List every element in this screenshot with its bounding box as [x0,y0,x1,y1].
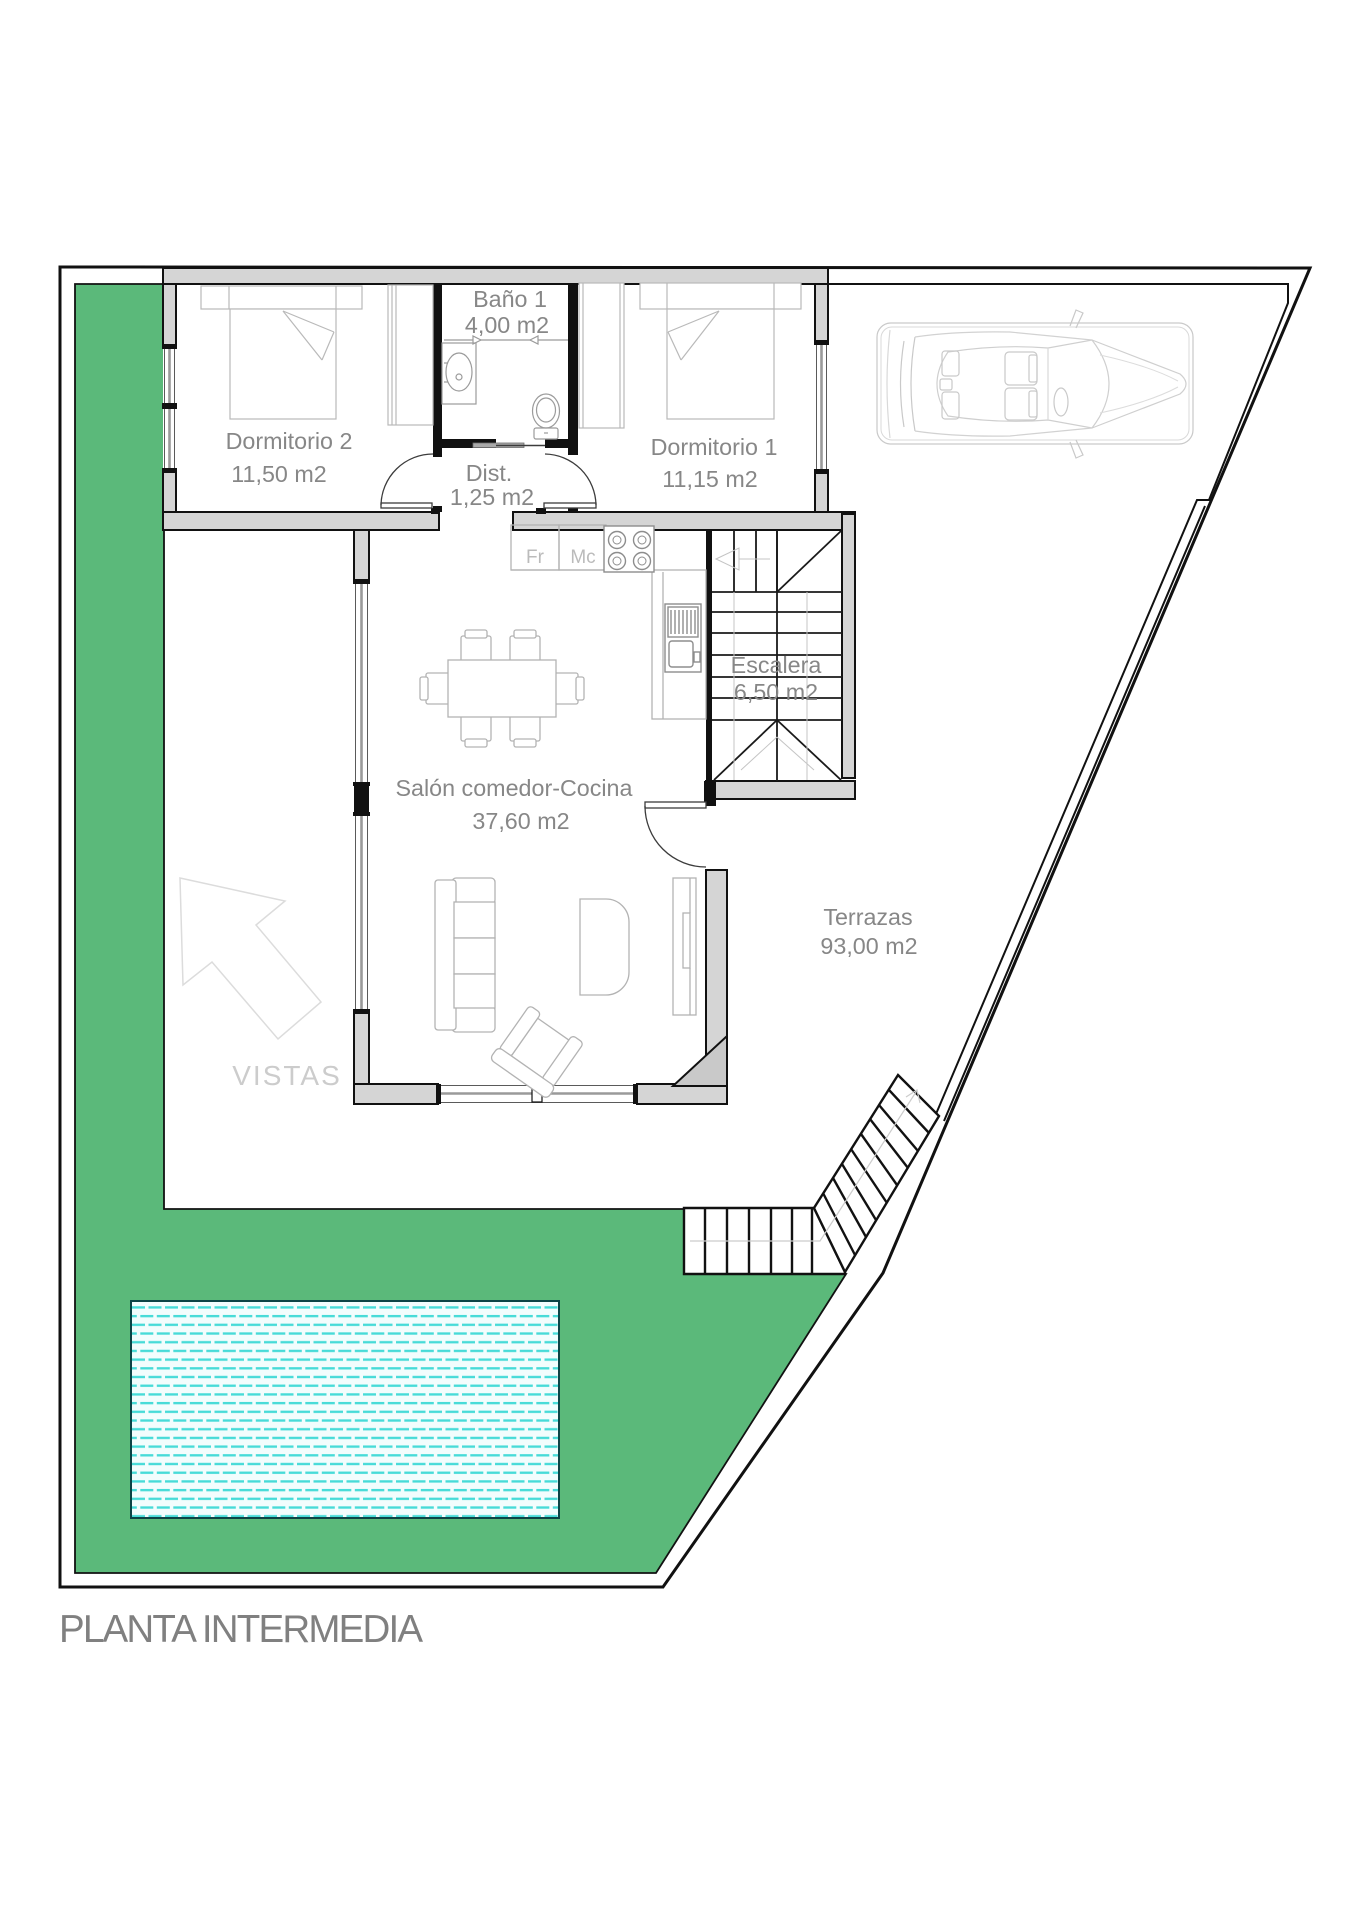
svg-text:PLANTA INTERMEDIA: PLANTA INTERMEDIA [59,1608,423,1651]
svg-text:Terrazas: Terrazas [823,904,912,930]
svg-text:Dormitorio 2: Dormitorio 2 [226,428,353,454]
svg-text:Mc: Mc [570,547,595,568]
svg-text:11,50 m2: 11,50 m2 [231,461,326,487]
svg-text:Escalera: Escalera [731,652,822,678]
svg-text:Fr: Fr [526,547,545,568]
svg-text:6,50 m2: 6,50 m2 [734,679,818,705]
svg-text:11,15 m2: 11,15 m2 [662,466,757,492]
svg-text:Dormitorio 1: Dormitorio 1 [651,434,778,460]
svg-text:93,00 m2: 93,00 m2 [820,933,917,959]
svg-text:Baño 1: Baño 1 [473,286,547,312]
svg-text:1,25 m2: 1,25 m2 [450,484,534,510]
svg-text:37,60 m2: 37,60 m2 [472,808,569,834]
svg-text:4,00 m2: 4,00 m2 [465,312,549,338]
svg-text:Salón comedor-Cocina: Salón comedor-Cocina [396,775,633,801]
svg-text:Dist.: Dist. [466,460,513,486]
svg-text:VISTAS: VISTAS [232,1060,342,1091]
